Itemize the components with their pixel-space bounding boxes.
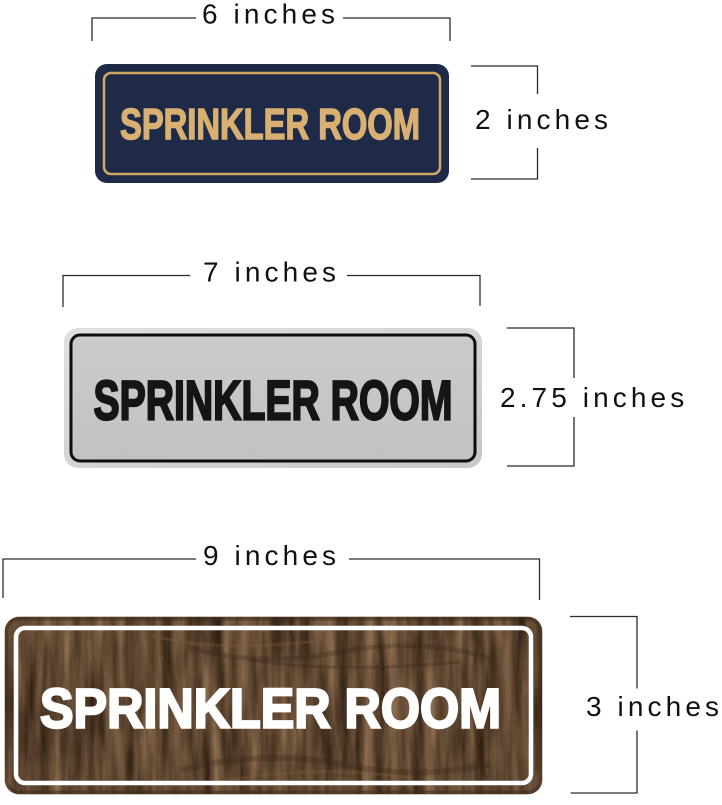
svg-text:7 inches: 7 inches bbox=[203, 257, 340, 288]
svg-text:SPRINKLER ROOM: SPRINKLER ROOM bbox=[40, 677, 501, 740]
svg-text:2.75 inches: 2.75 inches bbox=[500, 382, 688, 413]
svg-text:SPRINKLER ROOM: SPRINKLER ROOM bbox=[94, 369, 453, 431]
svg-text:2 inches: 2 inches bbox=[475, 104, 612, 135]
svg-text:9 inches: 9 inches bbox=[203, 540, 340, 571]
svg-text:3 inches: 3 inches bbox=[586, 691, 722, 722]
svg-text:SPRINKLER ROOM: SPRINKLER ROOM bbox=[120, 101, 420, 149]
svg-text:6 inches: 6 inches bbox=[202, 0, 339, 30]
